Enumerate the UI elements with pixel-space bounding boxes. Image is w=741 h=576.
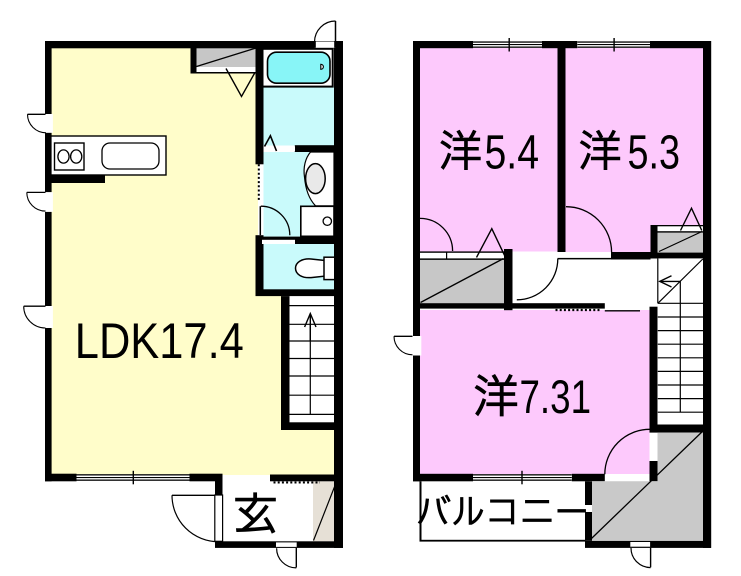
svg-text:7.31: 7.31	[520, 371, 592, 424]
svg-text:LDK17.4: LDK17.4	[75, 313, 244, 369]
svg-text:5.3: 5.3	[628, 127, 681, 180]
svg-text:5.4: 5.4	[485, 127, 540, 180]
